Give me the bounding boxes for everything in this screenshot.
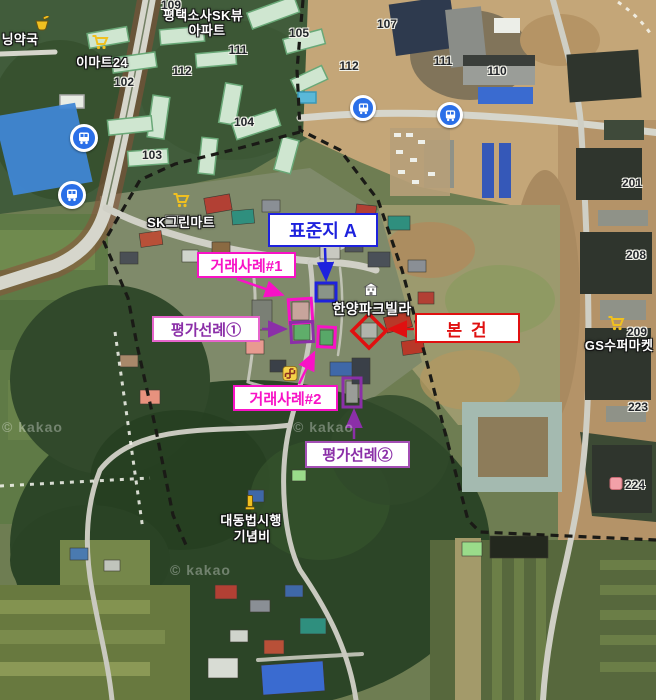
cart-icon-skgreen [173, 193, 190, 213]
poi-label-gs-supermarket[interactable]: GS수퍼마켓 [585, 339, 653, 353]
poi-square-icon [610, 477, 623, 495]
poi-label-monument-line2[interactable]: 기념비 [234, 530, 271, 544]
building-number: 110 [487, 64, 506, 78]
poi-label-monument-line1[interactable]: 대동법시행 [220, 514, 281, 528]
building-number: 103 [142, 148, 162, 162]
bus-glyph [357, 102, 370, 115]
callout-sale-case1: 거래사례#1 [197, 252, 296, 278]
bus-glyph [65, 188, 79, 202]
building-number: 223 [628, 400, 648, 414]
poi-label-skview-line2[interactable]: 아파트 [189, 24, 226, 38]
terrain-field-row [0, 600, 150, 614]
terrain-field-row [0, 662, 150, 676]
map-watermark: © kakao [2, 419, 63, 435]
callout-subject: 본 건 [415, 313, 520, 343]
temple-icon [283, 366, 298, 386]
building-number: 224 [625, 478, 645, 492]
poi-label-pharmacy[interactable]: 닝약국 [2, 33, 39, 47]
cart-icon-gs [608, 316, 625, 336]
satellite-basemap [0, 0, 656, 700]
bus-stop-icon[interactable] [70, 124, 98, 152]
map-watermark: © kakao [293, 419, 354, 435]
terrain-dirt [385, 222, 475, 278]
building-number: 201 [622, 176, 642, 190]
arrow-standard-lot [325, 248, 326, 277]
building-number: 104 [234, 115, 254, 129]
poi-label-emart24[interactable]: 이마트24 [76, 56, 128, 70]
satellite-map[interactable]: © kakao © kakao © kakao 닝약국 이마트24 평택소사SK… [0, 0, 656, 700]
terrain-field-row [0, 630, 165, 644]
building-number: 208 [626, 248, 646, 262]
callout-sale-case2: 거래사례#2 [233, 385, 338, 411]
building-number: 109 [161, 0, 181, 12]
terrain-basin-inner [478, 417, 548, 477]
villa-building-icon [364, 283, 379, 302]
cart-icon-emart [92, 35, 109, 55]
poi-label-hanyang-villa[interactable]: 한양파크빌라 [332, 302, 411, 316]
callout-precedent2: 평가선례② [305, 441, 410, 468]
bus-stop-icon[interactable] [58, 181, 86, 209]
terrain-dirt [420, 350, 520, 410]
building-number: 107 [377, 17, 397, 31]
building-number: 112 [339, 59, 358, 73]
building-number: 102 [114, 75, 134, 89]
bus-glyph [77, 131, 91, 145]
building-number: 111 [434, 54, 453, 68]
building-number: 209 [627, 325, 647, 339]
map-watermark: © kakao [170, 562, 231, 578]
callout-precedent1: 평가선례① [152, 316, 260, 342]
building-number: 105 [289, 26, 309, 40]
building-number: 111 [229, 43, 248, 57]
building-number: 112 [172, 64, 191, 78]
callout-standard-lot: 표준지 A [268, 213, 378, 247]
bus-stop-icon[interactable] [350, 95, 376, 121]
bus-glyph [444, 109, 457, 122]
bus-stop-icon[interactable] [437, 102, 463, 128]
poi-label-skgreenmart[interactable]: SK그린마트 [147, 216, 215, 230]
terrain-path [455, 538, 481, 700]
